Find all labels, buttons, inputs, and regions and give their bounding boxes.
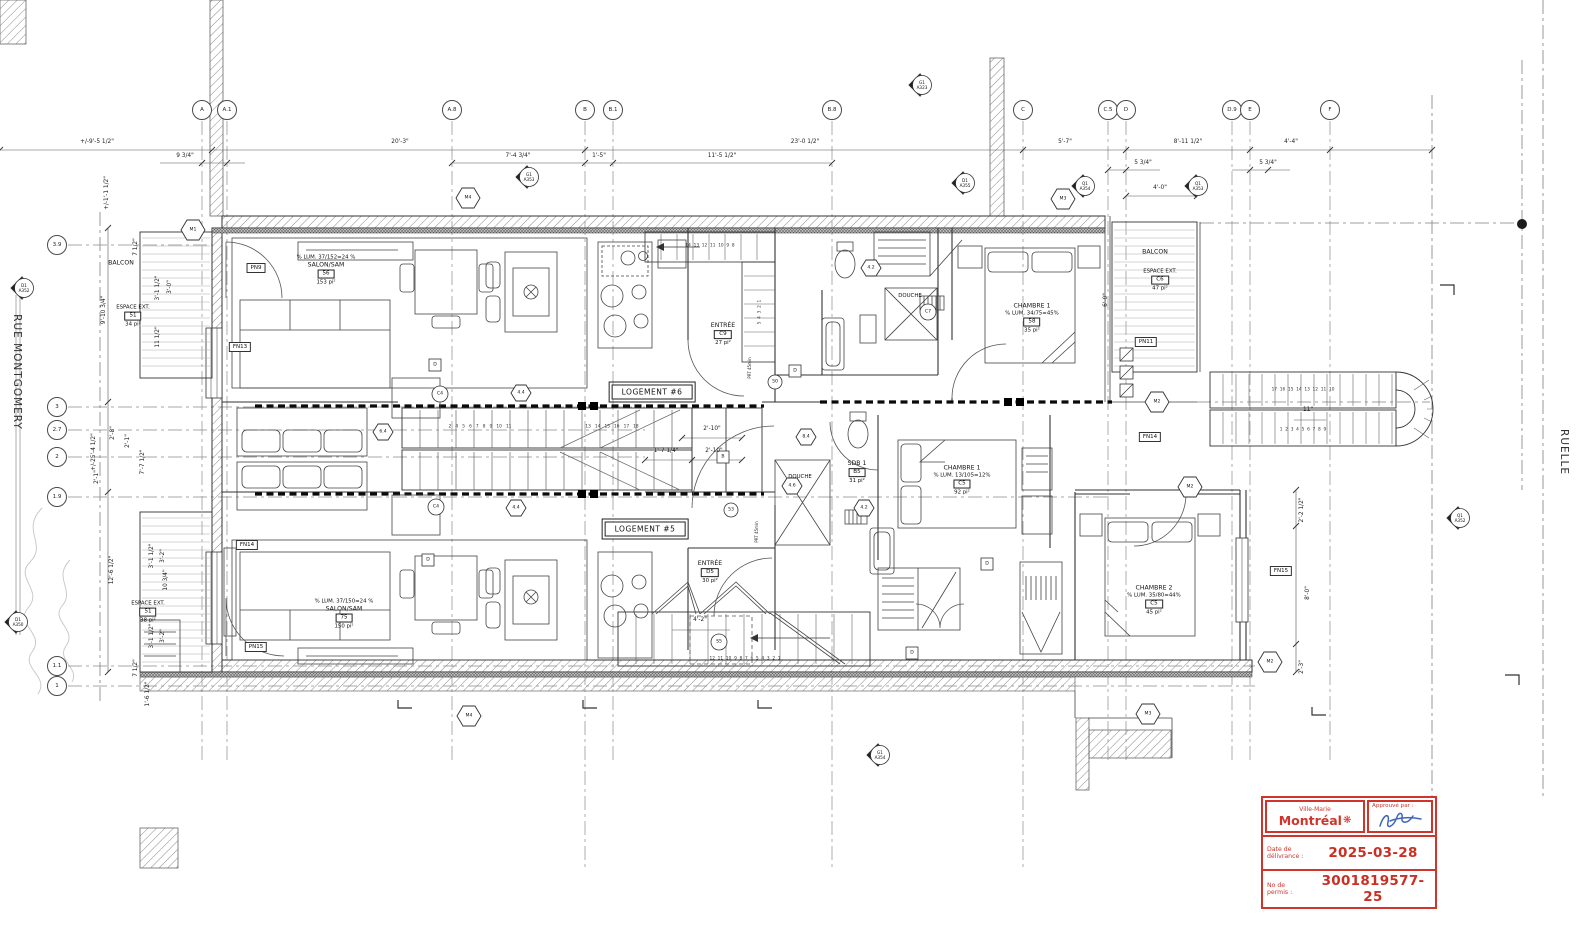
grid-bubble-b1: B.1	[603, 100, 623, 120]
dim: 11"	[1303, 407, 1313, 413]
dim: 8'-0"	[1305, 586, 1311, 600]
stamp-permit-label: No de permis :	[1267, 882, 1315, 897]
window-tag-fn14: FN14	[1139, 432, 1161, 442]
grid-bubble-1-1: 1.1	[47, 656, 67, 676]
room-label-balcon-tl: BALCON	[108, 259, 134, 266]
grid-bubble-a1: A.1	[217, 100, 237, 120]
dim: 4'-0"	[1153, 185, 1167, 191]
room-label-chambre2: CHAMBRE 2 % LUM. 35/80=44% C5 45 pi²	[1127, 585, 1181, 616]
dim: 3'-2"	[160, 549, 166, 563]
stamp-date-label: Date de délivrance :	[1267, 846, 1315, 861]
grid-bubble-b8: B.8	[822, 100, 842, 120]
dim: 2'-1"	[125, 434, 131, 448]
stair-numbers: 2 4 5 6 7 8 9 10 11	[449, 425, 512, 430]
wall-type-m3: M3	[1060, 196, 1067, 201]
dim: 2'-1"	[94, 470, 100, 484]
note-hex-4-2: 4.2	[860, 505, 867, 510]
dim: 3'-2"	[160, 629, 166, 643]
dim: 2'-3"	[1299, 660, 1305, 674]
box-tag-d: D	[985, 561, 989, 566]
stair-numbers: 17 16 15 14 13 12 11 10	[1272, 388, 1335, 393]
dim: 10 3/4"	[163, 569, 169, 590]
window-tag-fn14: FN14	[236, 540, 258, 550]
grid-bubble-1: 1	[47, 676, 67, 696]
dim: 7'-4 3/4"	[506, 153, 531, 159]
tag-c7: C7	[925, 309, 931, 314]
box-tag-d: D	[426, 557, 430, 562]
dim: 1'-5"	[592, 153, 606, 159]
room-label-sdb1: SDB 1 B5 31 pi²	[848, 460, 867, 484]
dim: 12'-6 1/2"	[109, 556, 115, 585]
stamp-borough: Ville-Marie	[1299, 806, 1331, 813]
wall-type-m1: M1	[190, 227, 197, 232]
grid-bubble-a: A	[192, 100, 212, 120]
section-marker: Q1A352	[1455, 513, 1466, 523]
room-label-douche-6: DOUCHE	[898, 293, 922, 299]
dim: 2'-10"	[705, 448, 722, 454]
dim: 2'-8"	[110, 426, 116, 440]
note-hex-4-6: 4.6	[788, 483, 795, 488]
window-tag-fn15: FN15	[1270, 566, 1292, 576]
dim: 8'-11 1/2"	[1174, 139, 1203, 145]
room-label-espace-ext-bl: ESPACE EXT. 51 38 pi²	[131, 601, 165, 624]
tag-s5: S5	[716, 639, 722, 644]
section-marker: G1A323	[917, 80, 928, 90]
stair-numbers: 12 11 10 9 8 7 6 5 4 3 2 1	[709, 657, 780, 662]
grid-bubble-c5: C.5	[1098, 100, 1118, 120]
dim: 5'-7"	[1058, 139, 1072, 145]
stamp-city: Montréal❋	[1279, 813, 1352, 828]
stair-numbers: 14 13 12 11 10 9 8	[685, 244, 734, 249]
room-label-entree-6: ENTRÉE C9 27 pi²	[711, 322, 735, 346]
street-label-rue-montgomery: RUE MONTGOMERY	[10, 314, 22, 430]
grid-bubble-1-9: 1.9	[47, 487, 67, 507]
grid-bubble-3-9: 3.9	[47, 235, 67, 255]
dim: 3'-1 1/2"	[149, 624, 155, 649]
room-label-espace-ext-tr: ESPACE EXT. C6 47 pi²	[1143, 269, 1177, 292]
section-marker: D1A355	[960, 178, 971, 188]
wall-type-m2: M2	[1187, 484, 1194, 489]
dim: +/-1'-1 1/2"	[104, 176, 110, 210]
dim: 11 1/2"	[155, 326, 161, 347]
room-label-entree-5: ENTRÉE D5 30 pi²	[698, 560, 722, 584]
section-marker: D1A352	[19, 283, 30, 293]
room-label-salon-6: % LUM. 37/152=24 % SALON/SAM 56 153 pi²	[297, 255, 356, 286]
section-marker: D1A350	[13, 617, 24, 627]
box-tag-d: D	[433, 362, 437, 367]
dim: 5 3/4"	[1259, 160, 1277, 166]
box-tag-b: B	[721, 454, 724, 459]
unit-label-logement-5: LOGEMENT #5	[605, 522, 686, 537]
dim: 4'-2"	[693, 617, 707, 623]
dim: 2'-2 1/2"	[1299, 498, 1305, 523]
tag-c4: C4	[437, 391, 443, 396]
wall-type-m2: M2	[1267, 659, 1274, 664]
grid-bubble-f: F	[1320, 100, 1340, 120]
wall-type-m2: M2	[1154, 399, 1161, 404]
dim: 2'-10"	[703, 426, 720, 432]
stamp-city-cell: Ville-Marie Montréal❋	[1265, 800, 1365, 833]
window-tag-fn13: FN13	[229, 342, 251, 352]
room-label-espace-ext-tl: ESPACE EXT. 51 34 pi²	[116, 305, 150, 328]
section-marker: Q1A354	[1080, 181, 1091, 191]
section-marker: Q1A353	[1193, 181, 1204, 191]
dim: 11'-5 1/2"	[708, 153, 737, 159]
grid-bubble-e: E	[1240, 100, 1260, 120]
unit-label-logement-6: LOGEMENT #6	[612, 385, 693, 400]
dim: 1'-7 1/4"	[654, 448, 679, 454]
dim: +/-25'-4 1/2"	[91, 433, 97, 471]
box-tag-d: D	[793, 368, 797, 373]
grid-bubble-2-7: 2.7	[47, 420, 67, 440]
fire-rating-note: PRT 45min	[748, 357, 752, 378]
note-hex-6-4: 6.4	[379, 429, 386, 434]
dim: 5 3/4"	[1134, 160, 1152, 166]
dim: 9'-10 3/4"	[101, 296, 107, 325]
stamp-date-row: Date de délivrance : 2025-03-28	[1263, 835, 1435, 869]
grid-bubble-c: C	[1013, 100, 1033, 120]
dim: 3'-1 1/2"	[149, 544, 155, 569]
stair-numbers: 13 14 15 16 17 18	[585, 425, 638, 430]
permit-approval-stamp: Ville-Marie Montréal❋ Approuvé par : Dat…	[1261, 796, 1437, 909]
fire-rating-note: PRT 45min	[755, 521, 759, 542]
wall-type-m4: M4	[465, 195, 472, 200]
window-tag-pn11: PN11	[1135, 337, 1157, 347]
stamp-permit-value: 3001819577-25	[1315, 873, 1431, 905]
floorplan-canvas: RUE MONTGOMERY RUELLE A A.1 A.8 B B.1 B.…	[0, 0, 1586, 926]
grid-bubble-d: D	[1116, 100, 1136, 120]
grid-bubble-b: B	[575, 100, 595, 120]
box-tag-d: D	[910, 650, 914, 655]
dim: 7 1/2"	[133, 659, 139, 677]
wall-type-m4: M4	[466, 713, 473, 718]
stamp-approved-label: Approuvé par :	[1369, 802, 1414, 809]
room-label-chambre1-6: CHAMBRE 1 % LUM. 34/75=45% 58 35 pi²	[1005, 303, 1059, 334]
grid-bubble-a8: A.8	[442, 100, 462, 120]
wall-type-m3: M3	[1145, 711, 1152, 716]
door-tag-50: 50	[772, 379, 778, 384]
room-label-balcon-tr: BALCON	[1142, 248, 1168, 255]
grid-bubble-3: 3	[47, 397, 67, 417]
dim: 3'-1 1/2"	[155, 276, 161, 301]
dim: 4'-4"	[1284, 139, 1298, 145]
stamp-permit-row: No de permis : 3001819577-25	[1263, 869, 1435, 907]
montreal-flower-icon: ❋	[1343, 815, 1351, 826]
room-label-douche-5: DOUCHE	[788, 474, 812, 480]
dim: +/-9'-5 1/2"	[80, 139, 114, 145]
note-hex-4-2: 4.2	[867, 265, 874, 270]
note-hex-4-4: 4.4	[512, 505, 519, 510]
grid-bubble-2: 2	[47, 447, 67, 467]
grid-bubble-d9: D.9	[1222, 100, 1242, 120]
stair-numbers: 5 4 3 2 1	[758, 300, 763, 325]
dim: 23'-0 1/2"	[791, 139, 820, 145]
section-marker: G1A353	[524, 172, 535, 182]
dim: 7 1/2"	[133, 238, 139, 256]
stamp-header: Ville-Marie Montréal❋ Approuvé par :	[1263, 798, 1435, 835]
door-tag-pn15: PN15	[245, 642, 267, 652]
street-label-ruelle: RUELLE	[1557, 429, 1569, 475]
dim: 1'-6 1/2"	[145, 682, 151, 707]
section-marker: G1A354	[875, 750, 886, 760]
room-label-salon-5: % LUM. 37/150=24 % SALON/SAM 75 150 pi²	[315, 599, 374, 630]
stamp-date-value: 2025-03-28	[1315, 845, 1431, 861]
dim: 6'-0"	[1103, 293, 1109, 307]
dim: 3'-0"	[167, 280, 173, 294]
dim: 20'-3"	[391, 139, 408, 145]
dim: 9 3/4"	[176, 153, 194, 159]
note-hex-4-4: 4.4	[517, 390, 524, 395]
dim: 7'-7 1/2"	[140, 450, 146, 475]
tag-c4: C4	[433, 504, 439, 509]
stamp-approved-cell: Approuvé par :	[1367, 800, 1433, 833]
stair-numbers: 1 2 3 4 5 6 7 8 9	[1280, 428, 1326, 433]
approval-signature	[1374, 809, 1426, 831]
room-label-chambre1-5: CHAMBRE 1 % LUM. 13/105=12% C5 92 pi²	[933, 465, 990, 496]
note-hex-8-4: 8.4	[802, 434, 809, 439]
door-tag-pn9: PN9	[247, 263, 266, 273]
door-tag-53: 53	[728, 507, 734, 512]
